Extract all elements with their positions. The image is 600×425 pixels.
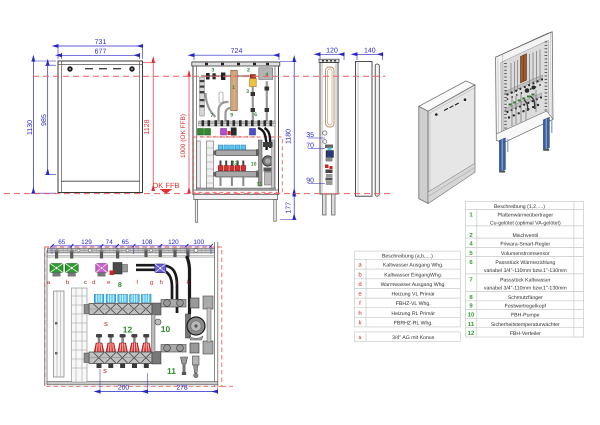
svg-text:11: 11: [167, 366, 176, 376]
svg-text:129: 129: [81, 239, 92, 246]
svg-text:74: 74: [106, 239, 114, 246]
svg-text:Plattenwärmeübertrager: Plattenwärmeübertrager: [497, 213, 553, 219]
svg-text:10: 10: [251, 162, 257, 168]
svg-text:Kaltwasser EingangWhg.: Kaltwasser EingangWhg.: [384, 272, 442, 278]
svg-text:OK FFB: OK FFB: [152, 181, 179, 190]
svg-text:3/4" AG mit Konus: 3/4" AG mit Konus: [392, 335, 435, 341]
svg-text:677: 677: [95, 48, 107, 55]
svg-text:120: 120: [168, 239, 179, 246]
svg-text:e: e: [107, 280, 110, 286]
svg-text:Heizung RL Primär: Heizung RL Primär: [391, 311, 435, 317]
svg-text:Kaltwasser Ausgang Whg.: Kaltwasser Ausgang Whg.: [383, 263, 444, 269]
svg-text:65: 65: [122, 239, 130, 246]
svg-text:g: g: [150, 280, 153, 286]
svg-text:d: d: [358, 281, 361, 288]
svg-text:FBH-Verteiler: FBH-Verteiler: [510, 331, 541, 337]
svg-text:9: 9: [230, 113, 233, 119]
svg-text:Warmwasser Ausgang Whg.: Warmwasser Ausgang Whg.: [381, 282, 446, 288]
svg-text:278: 278: [176, 385, 188, 392]
svg-text:d: d: [92, 279, 95, 286]
svg-text:140: 140: [364, 47, 376, 54]
svg-text:FBRHZ-RL Whg.: FBRHZ-RL Whg.: [394, 320, 433, 326]
svg-text:3: 3: [246, 89, 249, 95]
svg-text:b: b: [66, 279, 69, 286]
svg-text:1000 (OK FFB): 1000 (OK FFB): [180, 114, 187, 158]
svg-text:Volumenstromsensor: Volumenstromsensor: [501, 251, 550, 257]
svg-text:s: s: [359, 335, 362, 341]
svg-text:1130: 1130: [27, 120, 34, 135]
svg-text:177: 177: [286, 202, 293, 214]
svg-text:731: 731: [95, 39, 107, 46]
svg-text:985: 985: [41, 114, 48, 126]
svg-text:12: 12: [123, 325, 133, 335]
svg-text:Mischventil: Mischventil: [512, 233, 538, 239]
svg-text:variabel 3/4"-110mm bzw.1"-130: variabel 3/4"-110mm bzw.1"-130mm: [484, 286, 567, 292]
svg-text:Friwara-Smart-Regler: Friwara-Smart-Regler: [500, 242, 550, 248]
svg-text:1180: 1180: [286, 129, 293, 144]
svg-text:4: 4: [265, 72, 268, 78]
svg-text:11: 11: [256, 182, 262, 188]
svg-text:Cu-gelötet (optimal VA-gelötet: Cu-gelötet (optimal VA-gelötet): [490, 220, 561, 226]
svg-text:Schmutzfänger: Schmutzfänger: [508, 295, 543, 301]
svg-text:Beschreibung (1,2,....): Beschreibung (1,2,....): [494, 204, 545, 210]
svg-text:8: 8: [118, 282, 122, 289]
svg-text:7: 7: [211, 113, 214, 119]
svg-text:Sicherheitstemperaturwächter: Sicherheitstemperaturwächter: [491, 322, 560, 328]
svg-text:120: 120: [326, 47, 338, 54]
svg-text:h: h: [358, 310, 361, 317]
svg-text:Passstück Wärmezählung: Passstück Wärmezählung: [495, 260, 555, 266]
svg-text:6: 6: [254, 112, 257, 118]
svg-text:724: 724: [231, 48, 243, 55]
svg-text:c: c: [84, 280, 87, 286]
svg-text:Beschreibung (a,b,....): Beschreibung (a,b,....): [382, 253, 433, 259]
svg-text:108: 108: [142, 239, 153, 246]
svg-text:Festwertregelkopf: Festwertregelkopf: [505, 304, 547, 310]
svg-text:2: 2: [247, 68, 250, 74]
svg-text:65: 65: [58, 239, 66, 246]
svg-text:i: i: [176, 279, 177, 286]
svg-text:100: 100: [193, 239, 204, 246]
svg-text:10: 10: [161, 324, 171, 334]
svg-text:Passstück Kaltwasser: Passstück Kaltwasser: [500, 278, 551, 284]
svg-text:200: 200: [118, 385, 130, 392]
svg-text:11: 11: [468, 321, 475, 328]
svg-text:12: 12: [232, 161, 238, 167]
svg-text:s: s: [104, 319, 108, 328]
svg-text:variabel 3/4"-110mm bzw.1"-130: variabel 3/4"-110mm bzw.1"-130mm: [484, 268, 567, 274]
svg-text:FBHZ-VL Whg.: FBHZ-VL Whg.: [396, 301, 431, 307]
svg-text:FBH-Pumpe: FBH-Pumpe: [511, 312, 540, 318]
svg-text:s: s: [103, 366, 107, 375]
svg-text:h: h: [160, 279, 163, 286]
svg-text:Heizung VL Primär: Heizung VL Primär: [392, 292, 436, 298]
svg-text:1128: 1128: [144, 119, 151, 134]
svg-text:k: k: [187, 279, 190, 286]
svg-text:3: 3: [212, 68, 215, 74]
svg-text:1: 1: [232, 85, 235, 91]
svg-text:10: 10: [468, 311, 475, 318]
svg-text:12: 12: [468, 330, 475, 337]
